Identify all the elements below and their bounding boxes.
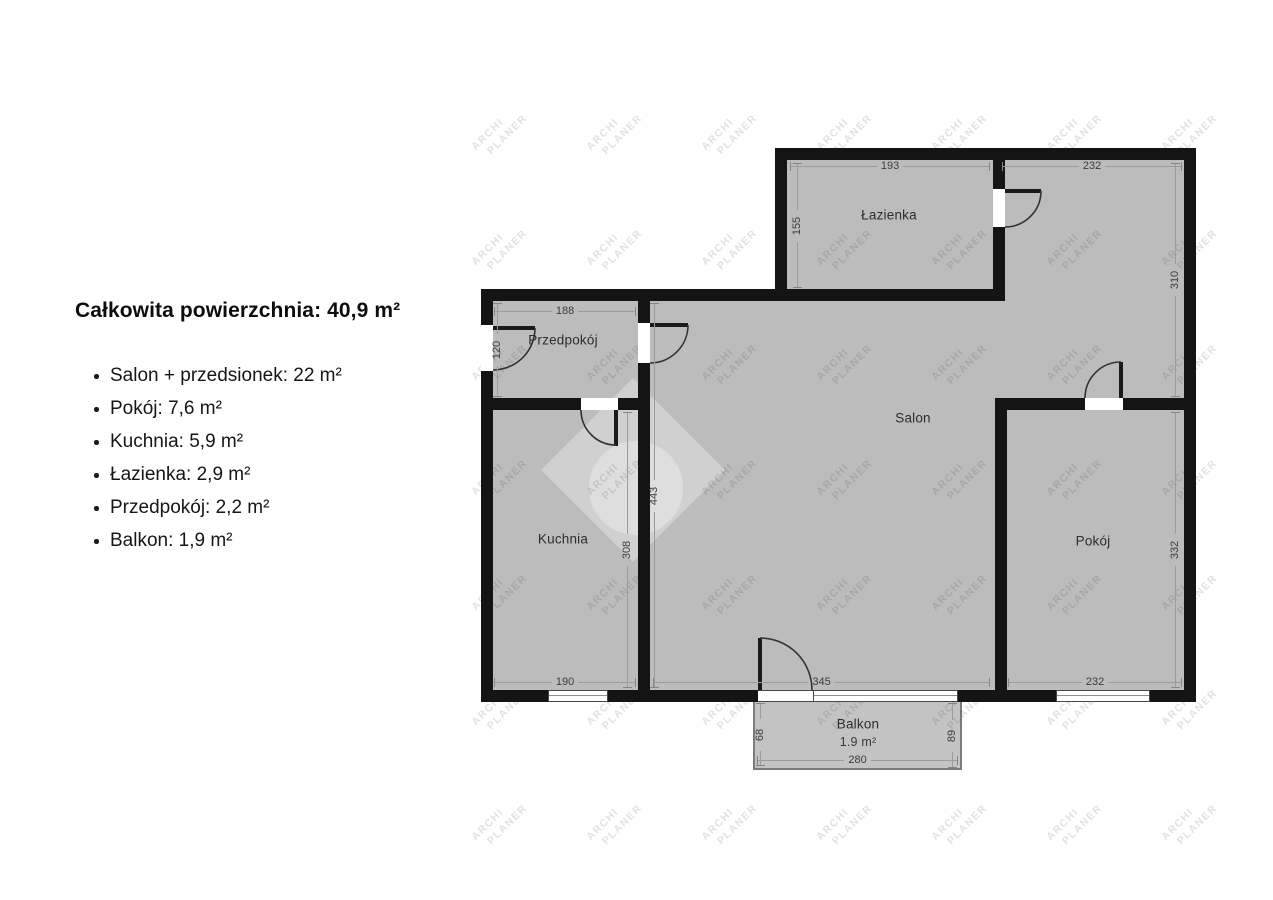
watermark-tile: ARCHIPLANER: [929, 792, 990, 853]
watermark-tile: ARCHIPLANER: [584, 217, 645, 278]
area-summary: Całkowita powierzchnia: 40,9 m² Salon + …: [75, 299, 400, 564]
dim-lazienka-height: 155: [791, 163, 803, 288]
dim-kuchnia-height: 308: [621, 412, 633, 688]
floorplan-page: Całkowita powierzchnia: 40,9 m² Salon + …: [0, 0, 1273, 900]
watermark-tile: ARCHIPLANER: [1159, 792, 1220, 853]
dim-salon-bottom-width: 345: [653, 676, 990, 688]
wall-top-exterior: [775, 148, 1196, 160]
kitchen-window: [548, 690, 608, 702]
watermark-tile: ARCHIPLANER: [699, 217, 760, 278]
dim-salon-height: 443: [648, 303, 660, 688]
dim-pokoj-height: 332: [1169, 412, 1181, 688]
room-fill-top-section: [787, 160, 1184, 301]
archiplaner-logo-circle: [589, 441, 683, 535]
wall-middle-top-exterior: [481, 289, 1005, 301]
watermark-tile: ARCHIPLANER: [699, 102, 760, 163]
list-item-przedpokoj: Przedpokój: 2,2 m²: [75, 498, 400, 518]
wall-right-exterior: [1184, 148, 1196, 702]
room-label-balkon: Balkon: [837, 717, 879, 732]
room-label-lazienka: Łazienka: [861, 208, 917, 223]
balcony-door-sill: [758, 690, 813, 702]
dim-right-upper-height: 310: [1169, 163, 1181, 397]
list-item-kuchnia: Kuchnia: 5,9 m²: [75, 432, 400, 452]
watermark-tile: ARCHIPLANER: [584, 102, 645, 163]
kitchen-door-opening: [581, 398, 618, 410]
watermark-tile: ARCHIPLANER: [814, 792, 875, 853]
dim-przedpokoj-width: 188: [494, 305, 636, 317]
room-label-pokoj: Pokój: [1076, 534, 1111, 549]
watermark-tile: ARCHIPLANER: [584, 792, 645, 853]
dim-przedpokoj-height: 120: [491, 303, 503, 397]
dim-balkon-width: 280: [757, 754, 958, 766]
dim-lazienka-width: 193: [790, 160, 990, 172]
watermark-tile: ARCHIPLANER: [469, 217, 530, 278]
wall-bathroom-right: [993, 160, 1005, 301]
room-label-balkon-area: 1.9 m²: [840, 735, 877, 749]
wall-bathroom-left-exterior: [775, 148, 787, 301]
room-window: [1056, 690, 1150, 702]
watermark-tile: ARCHIPLANER: [1044, 792, 1105, 853]
room-label-przedpokoj: Przedpokój: [528, 333, 598, 348]
room-label-kuchnia: Kuchnia: [538, 532, 588, 547]
dim-balkon-right-height: 89: [946, 703, 958, 768]
watermark-tile: ARCHIPLANER: [469, 102, 530, 163]
room-door-opening: [1085, 398, 1123, 410]
dim-kuchnia-width: 190: [494, 676, 636, 688]
wall-room-left: [995, 410, 1007, 690]
list-item-lazienka: Łazienka: 2,9 m²: [75, 465, 400, 485]
room-label-salon: Salon: [895, 411, 931, 426]
watermark-tile: ARCHIPLANER: [699, 792, 760, 853]
bathroom-door-opening: [993, 189, 1005, 227]
list-item-pokoj: Pokój: 7,6 m²: [75, 399, 400, 419]
room-area-list: Salon + przedsionek: 22 m² Pokój: 7,6 m²…: [75, 366, 400, 551]
total-area-title: Całkowita powierzchnia: 40,9 m²: [75, 299, 400, 323]
balcony-window: [813, 690, 958, 702]
wall-kitchen-top: [493, 398, 650, 410]
list-item-balkon: Balkon: 1,9 m²: [75, 531, 400, 551]
dim-pokoj-width: 232: [1008, 676, 1182, 688]
watermark-tile: ARCHIPLANER: [469, 792, 530, 853]
dim-salon-top-width: 232: [1002, 160, 1182, 172]
list-item-salon: Salon + przedsionek: 22 m²: [75, 366, 400, 386]
dim-balkon-left-height: 68: [754, 703, 766, 766]
